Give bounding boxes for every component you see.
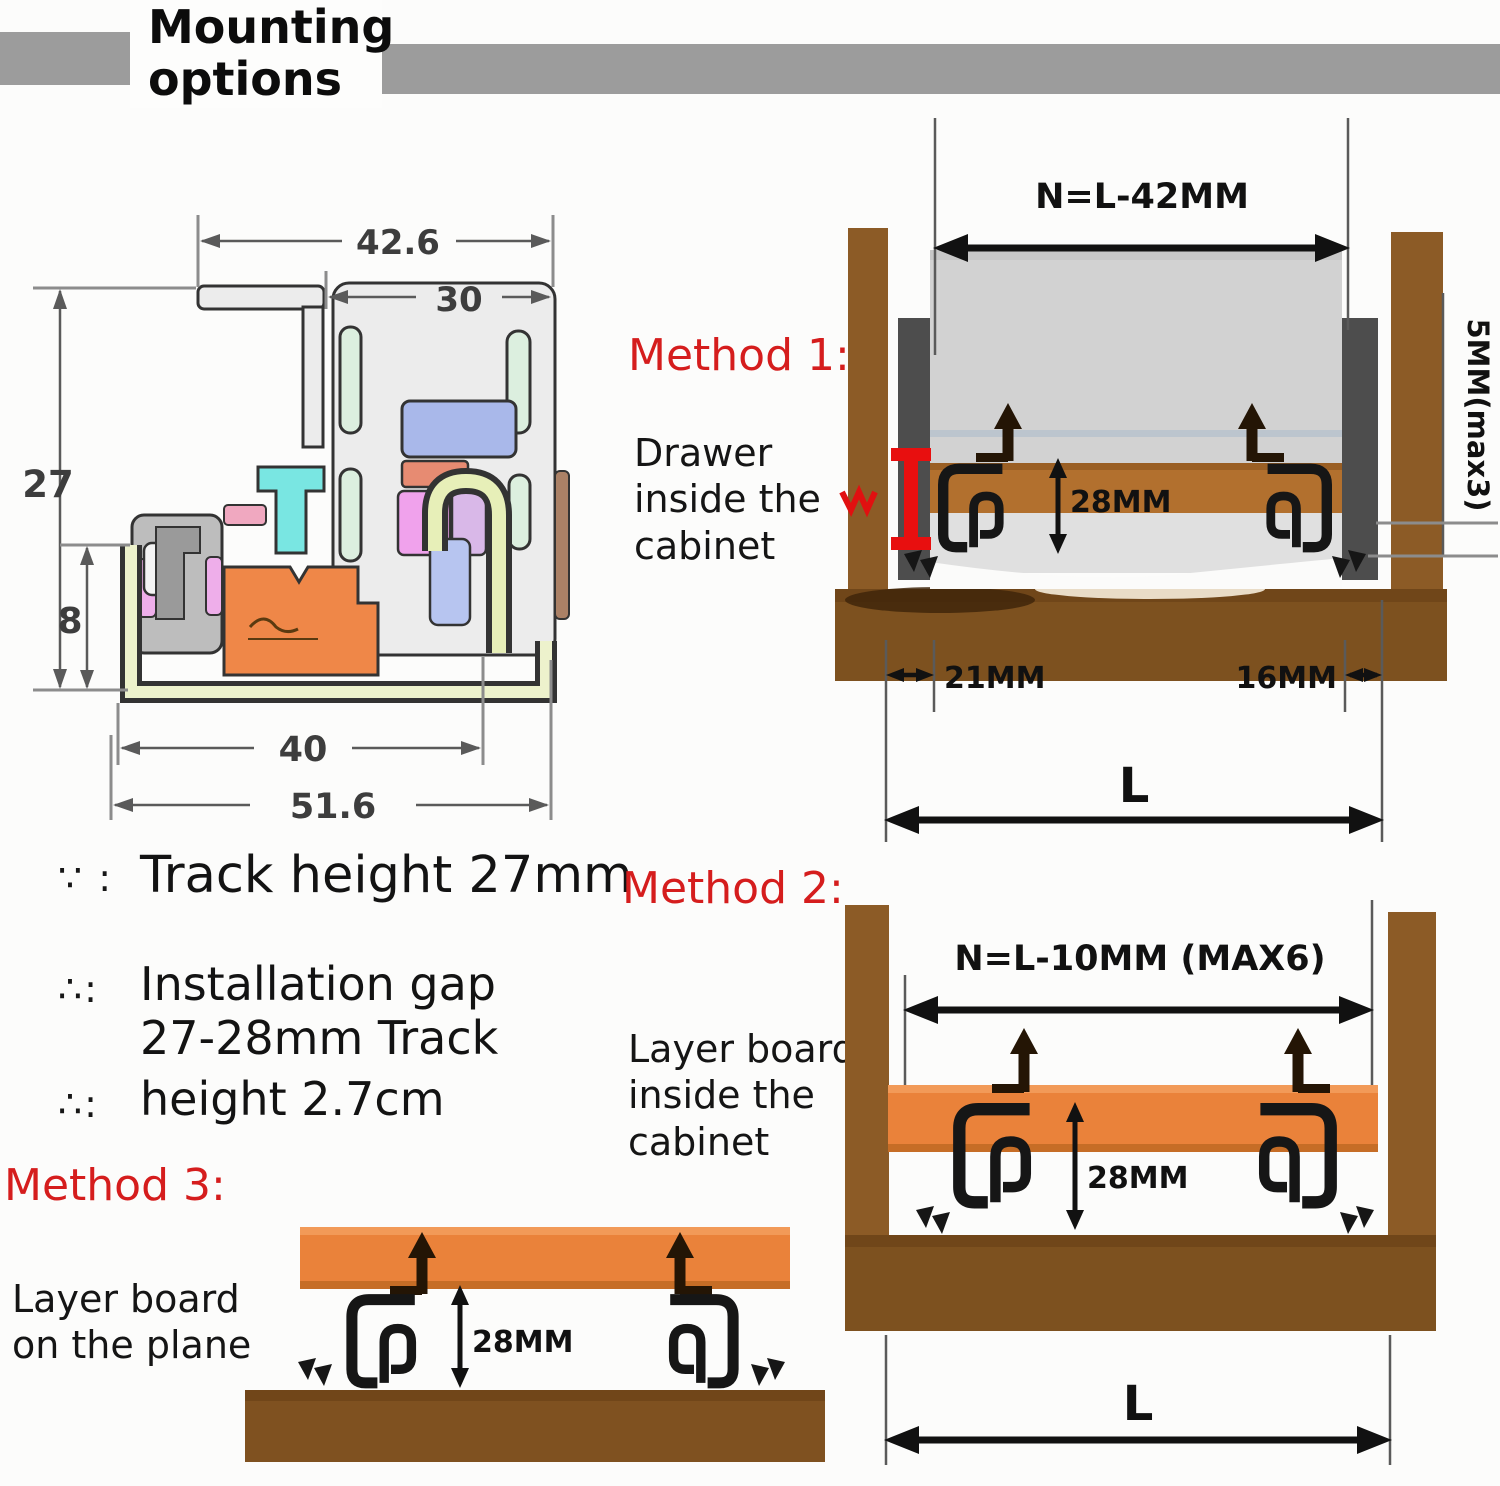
dim-42-6: 42.6 [198, 215, 553, 287]
dim-label: 28MM [1070, 485, 1171, 520]
dim-label: 8 [57, 601, 82, 642]
cabinet-bottom [845, 1235, 1436, 1331]
bottom-plane-streak [245, 1390, 825, 1401]
dim-label: 16MM [1236, 661, 1337, 696]
note-track-height: ∵ : Track height 27mm [58, 846, 658, 905]
header-bar-right [375, 44, 1500, 94]
layer-board-bottom [300, 1281, 790, 1289]
flange-web [303, 307, 323, 447]
therefore-symbol: ∴: [58, 957, 140, 1011]
dim-label: L [1119, 758, 1150, 814]
chevron-marks-icon [751, 1358, 785, 1386]
track-clip-icon [670, 1300, 733, 1383]
dim-8: 8 [57, 545, 130, 689]
because-symbol: ∵ : [58, 846, 140, 900]
track-clip-icon [352, 1300, 415, 1383]
dim-label: 30 [435, 280, 482, 320]
method3-diagram: 28MM [240, 1180, 840, 1486]
part-pink-top [224, 505, 266, 525]
part-cyan-t [258, 467, 324, 553]
cabinet-left-wall [845, 905, 889, 1237]
notes-block: ∵ : Track height 27mm ∴: Installation ga… [58, 846, 658, 1126]
dim-label: N=L-42MM [1035, 177, 1249, 217]
up-arrow-icon [1284, 1028, 1330, 1093]
cabinet-right-wall [1391, 232, 1443, 592]
cabinet-left-wall [848, 228, 888, 596]
part-orange [224, 567, 378, 675]
method2-diagram: N=L-10MM (MAX6) 28MM [820, 880, 1500, 1486]
dim-label: 21MM [944, 661, 1045, 696]
dim-label: N=L-10MM (MAX6) [954, 939, 1325, 979]
drawer-blue-line [930, 430, 1342, 437]
note-installation-gap: ∴: Installation gap 27-28mm Track [58, 957, 658, 1066]
method2-label: Method 2: [622, 863, 844, 914]
dim-label: 28MM [472, 1325, 573, 1360]
method1-diagram: N=L-42MM [820, 100, 1500, 860]
part-periwinkle [402, 401, 516, 457]
title-box: Mounting options [130, 0, 382, 108]
chevron-marks-icon [298, 1358, 332, 1386]
part-lightblue [430, 539, 470, 625]
part-brown-sliver [555, 471, 569, 619]
layer-board [300, 1227, 790, 1289]
cabinet-right-wall [1388, 912, 1436, 1238]
layer-board-top [300, 1227, 790, 1235]
chevron-marks-icon [916, 1206, 950, 1234]
dim-label: 42.6 [356, 223, 440, 263]
slot [340, 327, 361, 433]
dim-l: L [884, 712, 1384, 842]
chevron-marks-icon [1340, 1206, 1374, 1234]
method1-label: Method 1: [628, 330, 850, 381]
dim-label: 51.6 [290, 787, 376, 827]
dim-label: 40 [279, 730, 328, 770]
up-arrow-icon [992, 1028, 1038, 1093]
slot [509, 475, 530, 549]
shadow [845, 587, 1035, 613]
slot [340, 469, 361, 561]
mounting-options-infographic: Mounting options [0, 0, 1500, 1486]
dim-label: 28MM [1087, 1161, 1188, 1196]
method3-label: Method 3: [4, 1160, 226, 1211]
note-track-height-cm: ∴: height 2.7cm [58, 1072, 658, 1126]
cabinet-bottom-streak [845, 1235, 1436, 1247]
therefore-symbol: ∴: [58, 1072, 140, 1126]
cross-section-diagram: 42.6 30 27 8 [10, 175, 620, 835]
drawer-lower [930, 513, 1342, 573]
dim-label: 5MM(max3) [1461, 318, 1495, 511]
dim-l: L [884, 1335, 1392, 1465]
page-title: Mounting options [148, 2, 388, 105]
slide-right [1342, 318, 1378, 580]
part-pink [206, 557, 222, 615]
dim-28: 28MM [451, 1285, 573, 1388]
dim-label: 27 [22, 463, 74, 506]
dim-label: L [1123, 1376, 1154, 1432]
method3-desc: Layer board on the plane [12, 1276, 272, 1369]
method1-desc: Drawer inside the cabinet [634, 430, 839, 569]
header-bar-left [0, 32, 133, 85]
